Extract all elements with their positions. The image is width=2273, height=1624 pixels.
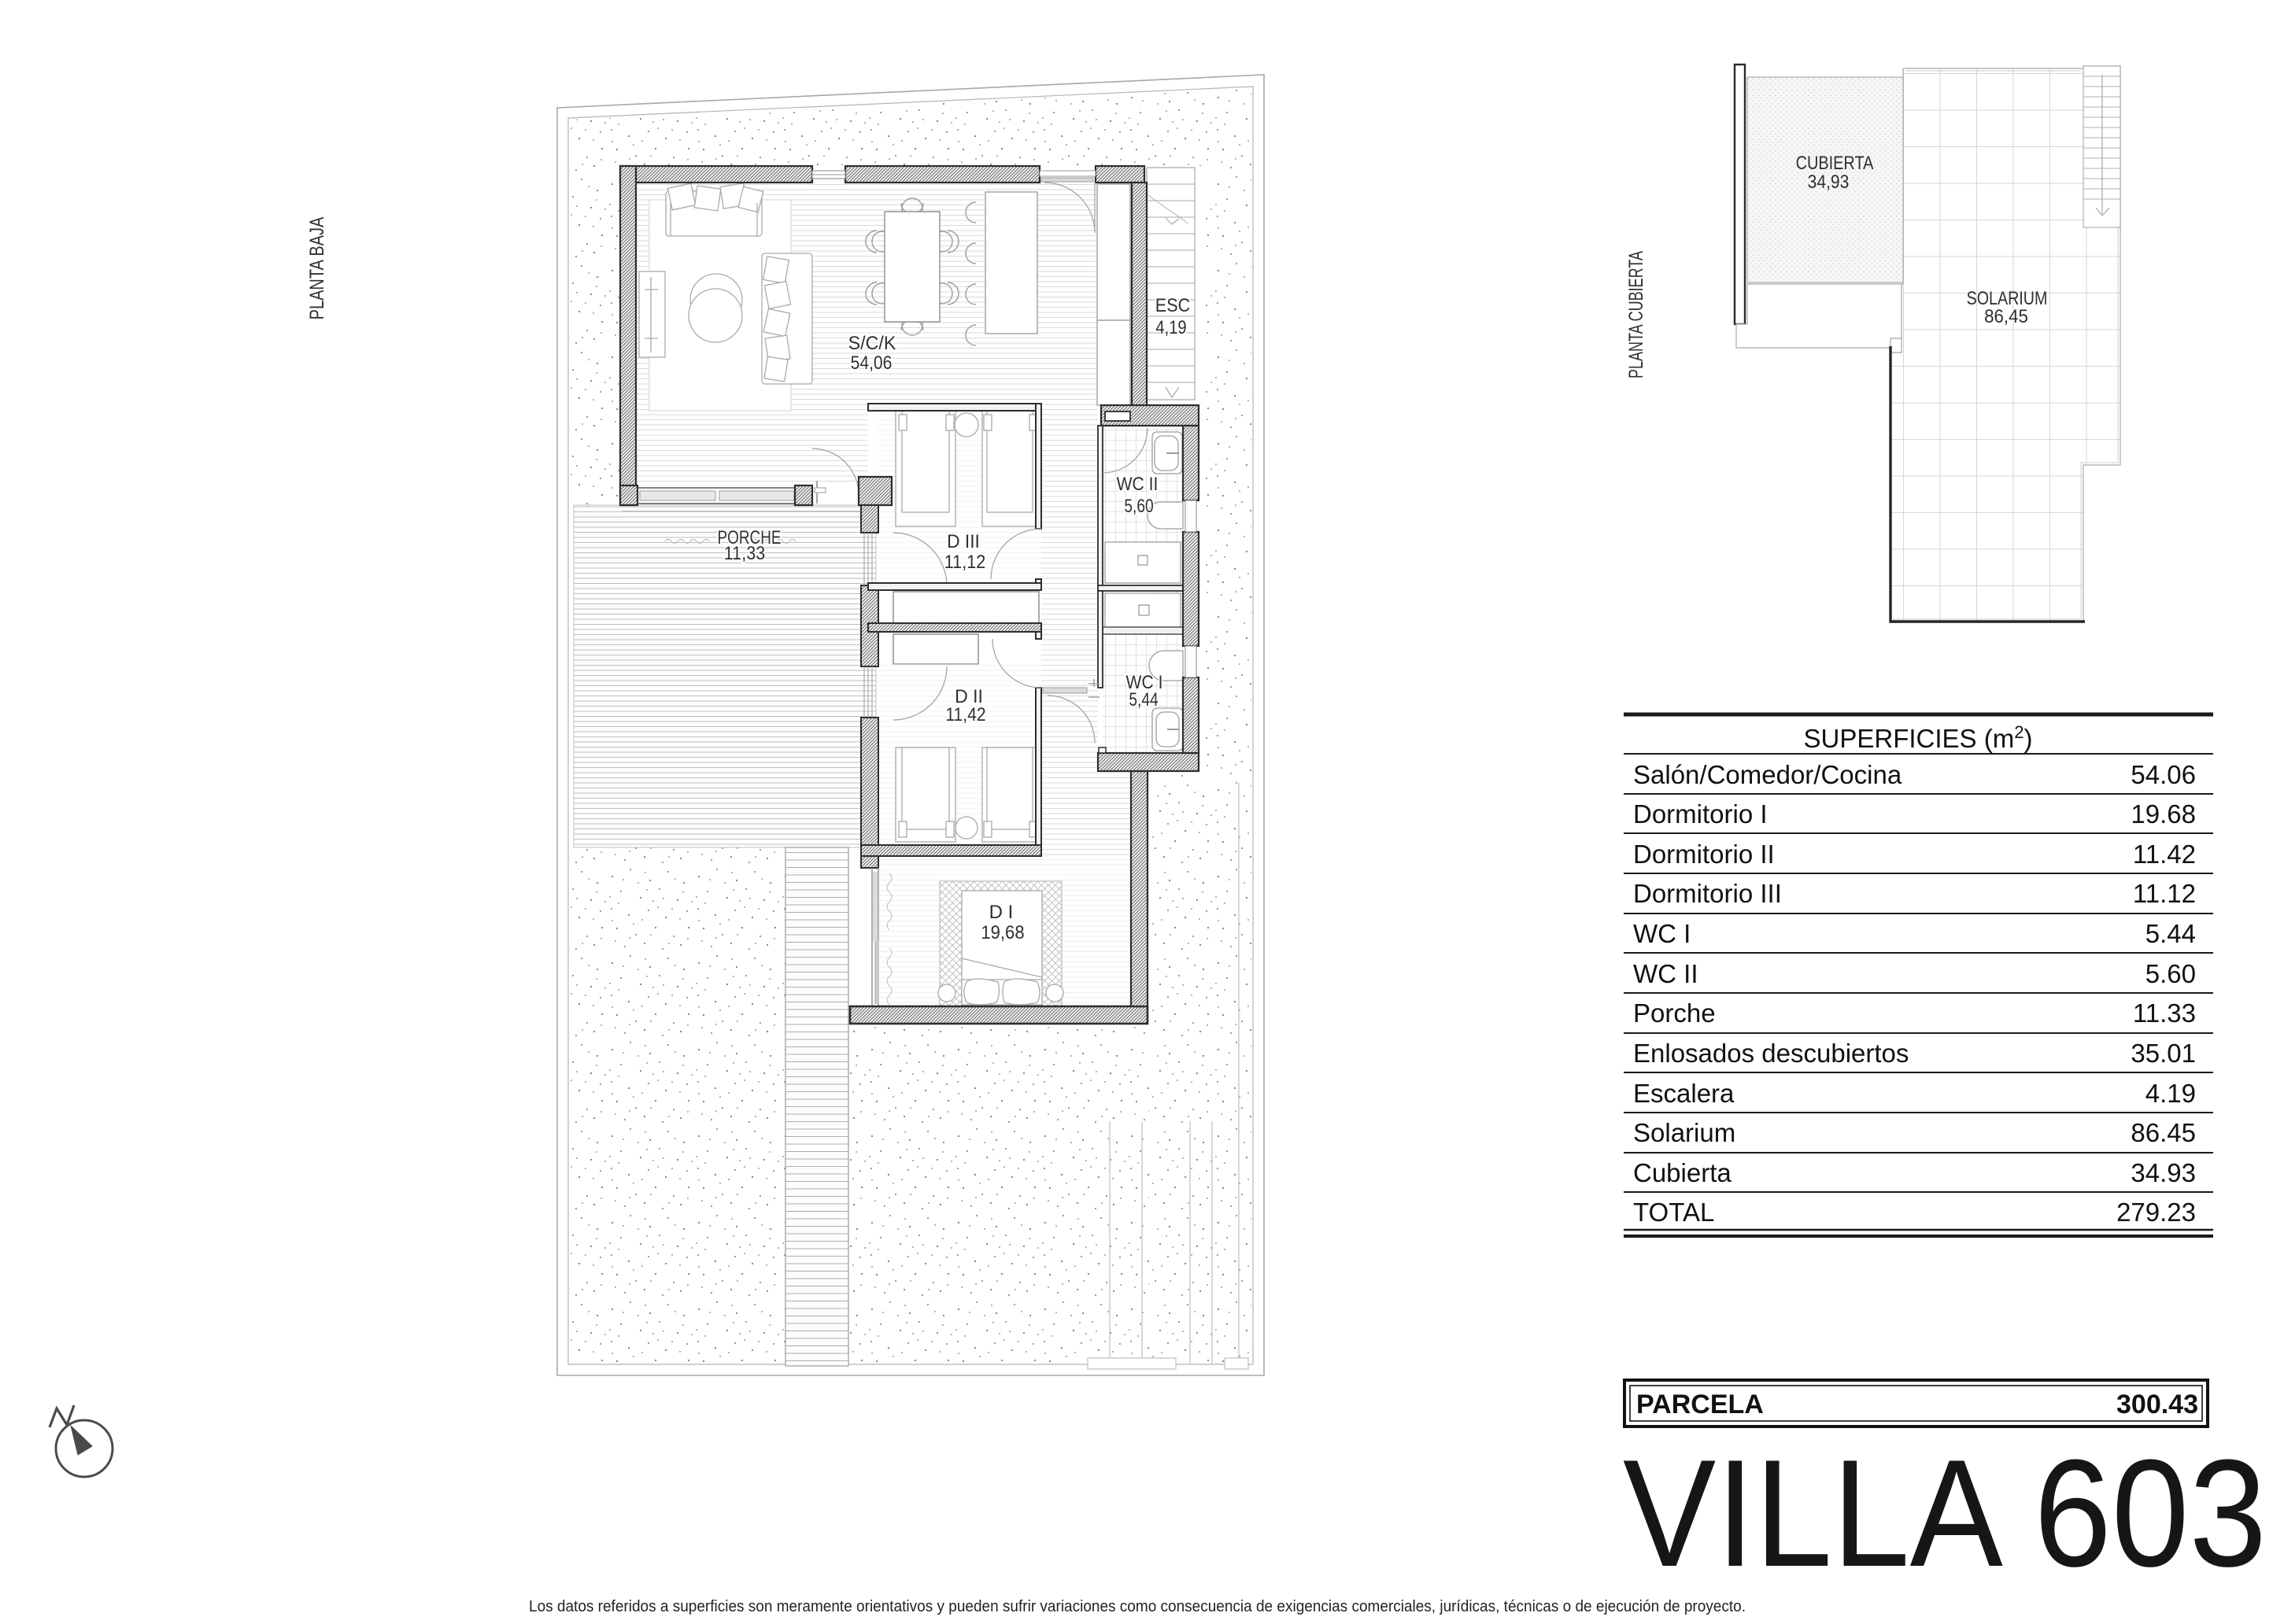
svg-text:ESC: ESC (1155, 294, 1190, 316)
svg-text:300.43: 300.43 (2116, 1390, 2198, 1419)
svg-text:11.42: 11.42 (2133, 840, 2196, 869)
svg-text:4.19: 4.19 (2145, 1079, 2196, 1108)
svg-text:SUPERFICIES (m2): SUPERFICIES (m2) (1804, 722, 2033, 753)
svg-text:54,06: 54,06 (851, 352, 893, 374)
svg-text:5.60: 5.60 (2145, 959, 2196, 988)
svg-text:11.33: 11.33 (2133, 998, 2196, 1028)
svg-text:279.23: 279.23 (2116, 1198, 2196, 1227)
svg-text:86.45: 86.45 (2131, 1118, 2196, 1147)
svg-text:19.68: 19.68 (2131, 799, 2196, 829)
svg-text:Escalera: Escalera (1633, 1079, 1735, 1108)
svg-text:35.01: 35.01 (2131, 1039, 2196, 1068)
svg-text:Dormitorio II: Dormitorio II (1633, 840, 1775, 869)
svg-text:86,45: 86,45 (1984, 305, 2028, 327)
svg-text:Dormitorio I: Dormitorio I (1633, 799, 1768, 829)
svg-text:5,44: 5,44 (1129, 688, 1158, 710)
svg-text:11,33: 11,33 (724, 542, 765, 563)
svg-text:Dormitorio III: Dormitorio III (1633, 879, 1782, 908)
svg-text:CUBIERTA: CUBIERTA (1796, 152, 1874, 173)
svg-text:VILLA 603: VILLA 603 (1623, 1428, 2267, 1599)
svg-text:Enlosados descubiertos: Enlosados descubiertos (1633, 1039, 1909, 1068)
svg-text:D III: D III (947, 530, 980, 552)
svg-text:4,19: 4,19 (1155, 316, 1186, 338)
svg-text:11,42: 11,42 (945, 704, 985, 725)
svg-text:Los datos referidos a superfic: Los datos referidos a superficies son me… (529, 1598, 1746, 1615)
svg-text:Salón/Comedor/Cocina: Salón/Comedor/Cocina (1633, 760, 1902, 789)
svg-text:34,93: 34,93 (1808, 172, 1850, 193)
svg-text:Porche: Porche (1633, 998, 1716, 1028)
svg-text:11.12: 11.12 (2133, 879, 2196, 908)
svg-text:11,12: 11,12 (944, 551, 985, 572)
svg-text:WC II: WC II (1633, 959, 1698, 988)
svg-text:TOTAL: TOTAL (1633, 1198, 1714, 1227)
svg-text:34.93: 34.93 (2131, 1158, 2196, 1187)
svg-text:WC II: WC II (1117, 474, 1159, 495)
svg-text:PLANTA BAJA: PLANTA BAJA (306, 216, 328, 320)
svg-text:54.06: 54.06 (2131, 760, 2196, 789)
svg-text:PARCELA: PARCELA (1636, 1390, 1764, 1419)
svg-text:Cubierta: Cubierta (1633, 1158, 1732, 1187)
svg-text:PLANTA CUBIERTA: PLANTA CUBIERTA (1624, 251, 1647, 378)
svg-text:Solarium: Solarium (1633, 1118, 1735, 1147)
svg-text:19,68: 19,68 (981, 921, 1024, 943)
svg-text:WC I: WC I (1633, 919, 1691, 948)
svg-text:5,60: 5,60 (1124, 495, 1153, 517)
svg-text:D I: D I (989, 902, 1014, 923)
svg-text:5.44: 5.44 (2145, 919, 2196, 948)
svg-text:S/C/K: S/C/K (848, 334, 896, 354)
